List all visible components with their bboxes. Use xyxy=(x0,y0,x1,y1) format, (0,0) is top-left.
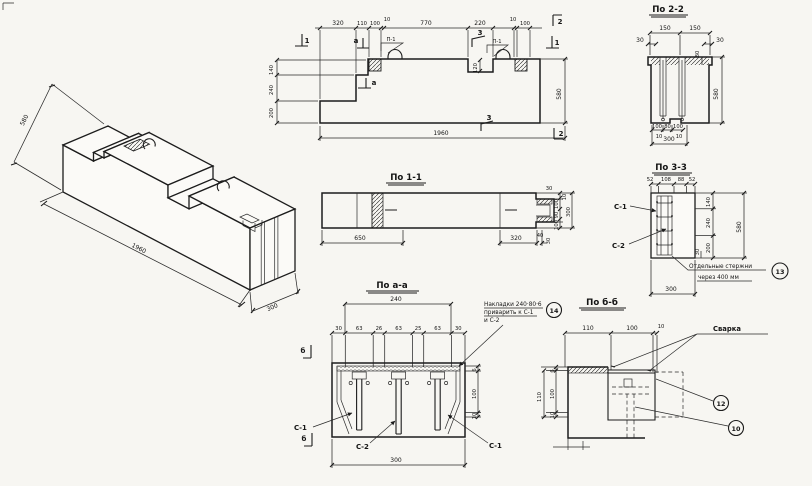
dim: 1960 xyxy=(433,130,448,137)
dim: 770 xyxy=(420,20,432,27)
section-title-underline xyxy=(579,308,626,310)
section-title-underline xyxy=(366,291,419,293)
dim: 100 xyxy=(626,325,638,332)
section-b-b-outline xyxy=(568,367,645,438)
channel-lines xyxy=(435,379,440,430)
dim: 63 xyxy=(356,326,363,332)
lifting-loop-1 xyxy=(388,50,402,59)
dim: 150 xyxy=(689,25,701,32)
ref-number: 10 xyxy=(732,425,741,433)
dim: 580 xyxy=(713,88,720,100)
bolt xyxy=(428,381,431,384)
dim: 110 xyxy=(357,21,367,27)
bottom-extension xyxy=(553,438,590,450)
dim: 90 xyxy=(554,212,560,219)
weld-label: Сварка xyxy=(713,325,741,333)
dim: 100 xyxy=(520,21,530,27)
flange-hatch-1 xyxy=(651,57,660,65)
dim: 52 xyxy=(647,177,654,183)
elevation-right-dimline xyxy=(540,59,568,123)
dim: 108 xyxy=(661,177,671,183)
iso-dim-height: 580 xyxy=(19,113,30,127)
section-title: По 1-1 xyxy=(390,173,422,183)
view-mark-3-top-lines xyxy=(472,36,485,47)
iso-dim-length: 1960 xyxy=(130,242,147,255)
hidden-lines xyxy=(612,372,683,438)
dim: 88 xyxy=(678,177,685,183)
mesh-label-c1: С-1 xyxy=(614,203,627,211)
note-text-1: Накладки 240·80·6 xyxy=(484,302,542,308)
weld-leaders xyxy=(613,334,768,371)
dim: 52 xyxy=(689,177,696,183)
dim: 30 xyxy=(716,37,724,44)
dim: 63 xyxy=(434,326,441,332)
collar xyxy=(392,372,406,379)
section-1-1-plate-band xyxy=(372,193,383,228)
dim: 30 xyxy=(695,249,701,256)
loop-flag-2 xyxy=(487,45,508,56)
channel-insert-right xyxy=(428,372,448,430)
mesh-label-c1-right: С-1 xyxy=(489,442,502,450)
dim: 100 xyxy=(550,389,556,399)
ref-10-leader xyxy=(635,407,728,426)
dim: 240 xyxy=(269,85,275,95)
dim: 10 xyxy=(472,413,478,420)
dim: 25 xyxy=(415,326,422,332)
isometric-view: 580 1960 300 xyxy=(11,84,300,313)
note-leader xyxy=(459,325,503,366)
dim: 120 xyxy=(473,63,479,73)
channel-lines xyxy=(396,379,401,434)
dim: 220 xyxy=(474,20,486,27)
end-plate-top xyxy=(537,199,552,204)
dim: 10 xyxy=(384,17,391,23)
ref-number: 13 xyxy=(776,268,785,276)
top-dim-lines xyxy=(332,333,465,367)
dim: 30 xyxy=(335,326,342,332)
channel-insert-left xyxy=(349,372,369,430)
dim: 200 xyxy=(269,108,275,118)
section-3-3: По 3-3 52 108 88 52 140 240 200 580 30 3… xyxy=(612,163,788,297)
dim: 100 xyxy=(370,21,380,27)
dim: 580 xyxy=(556,88,563,100)
bolt xyxy=(366,381,369,384)
section-b-b: По б-б 110 100 10 6 100 10 110 Сварка 12… xyxy=(537,297,768,450)
dim: 26 xyxy=(376,326,383,332)
note-text-2: приварить к С-1 xyxy=(484,310,534,316)
note-text-2: через 400 мм xyxy=(698,275,739,281)
dim: 240 xyxy=(390,296,402,303)
key-block xyxy=(608,367,655,420)
top-dim-lines xyxy=(650,33,710,55)
bolt xyxy=(389,381,392,384)
dim: 110 xyxy=(537,392,543,402)
section-mark-a-top-lines xyxy=(357,38,369,48)
dim: 6 xyxy=(550,369,556,372)
dim: 10 xyxy=(510,17,517,23)
section-mark-2-bottom: 2 xyxy=(559,130,564,138)
ref-number: 12 xyxy=(717,400,726,408)
embedded-plate-1 xyxy=(369,59,381,71)
dim: 300 xyxy=(390,457,402,464)
section-mark-a-bottom: а xyxy=(372,79,377,87)
dim: 110 xyxy=(582,325,594,332)
section-mark-b-top: б xyxy=(301,347,306,355)
dim: 140 xyxy=(706,197,712,207)
section-mark-1-right: 1 xyxy=(555,39,560,47)
section-title: По 3-3 xyxy=(655,163,687,173)
ref-number: 14 xyxy=(550,307,559,315)
dim: 10 xyxy=(658,324,665,330)
dim: 200 xyxy=(706,243,712,253)
dim: 320 xyxy=(332,20,344,27)
section-2-2-outline xyxy=(648,57,712,123)
dim: 300 xyxy=(566,207,572,217)
channel-lines xyxy=(357,379,362,430)
dim: 10 xyxy=(656,134,663,140)
dim: 300 xyxy=(663,136,675,143)
dim: 650 xyxy=(354,235,366,242)
view-mark-3-top: 3 xyxy=(478,29,483,37)
section-title-underline xyxy=(652,173,692,175)
dim: 100 xyxy=(554,220,560,230)
dim: 30 xyxy=(546,186,553,192)
collar xyxy=(352,372,366,379)
section-mark-1-left: 1 xyxy=(305,37,310,45)
section-mark-a-bottom-lines xyxy=(358,78,371,88)
dim: 80 xyxy=(664,124,671,130)
dim: 150 xyxy=(659,25,671,32)
collar xyxy=(431,372,445,379)
dim: 100 xyxy=(652,124,662,130)
dim: 100 xyxy=(673,124,683,130)
note-text-3: и С-2 xyxy=(484,318,500,324)
anchor-square xyxy=(624,379,632,387)
iso-dim-height-ticks xyxy=(11,85,55,165)
bolt xyxy=(406,381,409,384)
section-1-1: По 1-1 650 320 40 30 30 100 90 100 10 30… xyxy=(320,173,575,246)
dim: 580 xyxy=(736,221,743,233)
dim: 80 xyxy=(695,51,701,58)
bolt xyxy=(445,381,448,384)
dim: 63 xyxy=(395,326,402,332)
dim: 6 xyxy=(472,368,478,371)
end-plate-bottom xyxy=(537,217,552,222)
flange-hatch-2 xyxy=(666,57,679,65)
elevation-outline xyxy=(320,59,540,123)
note-text-1: Отдельные стержни xyxy=(689,264,752,270)
dim: 30 xyxy=(636,37,644,44)
bolt xyxy=(349,381,352,384)
view-mark-3-bottom: 3 xyxy=(487,114,492,122)
section-a-a: По а-а 240 30 63 26 63 25 63 30 xyxy=(294,281,562,468)
drawing-canvas: 580 1960 300 320 110 100 10 770 220 10 1… xyxy=(0,0,812,486)
dim: 100 xyxy=(472,389,478,399)
section-title-underline xyxy=(649,15,688,17)
section-title: По а-а xyxy=(376,281,407,291)
loop-label: П-1 xyxy=(492,39,501,45)
c1-right-leader xyxy=(448,415,488,443)
end-slot xyxy=(536,205,550,216)
lifting-loop-2 xyxy=(496,50,510,59)
section-mark-2-top: 2 xyxy=(558,18,563,26)
drawing-sheet: 580 1960 300 320 110 100 10 770 220 10 1… xyxy=(0,0,812,486)
cover-plate-band xyxy=(337,366,460,371)
mesh-label-c1-left: С-1 xyxy=(294,424,307,432)
dim: 30 xyxy=(455,326,462,332)
elevation-left-extensions xyxy=(277,60,366,123)
section-title: По б-б xyxy=(586,297,618,308)
ref-12-leader xyxy=(656,379,713,401)
dim: 10 xyxy=(676,134,683,140)
dim: 10 xyxy=(550,412,556,419)
loop-label: П-1 xyxy=(386,37,395,43)
sheet-corner-mark xyxy=(3,3,14,10)
dim: 30 xyxy=(546,238,552,245)
section-mark-b-bottom: б xyxy=(302,435,307,443)
dim: 10 xyxy=(562,194,568,201)
dim: 320 xyxy=(510,235,522,242)
dim: 240 xyxy=(706,218,712,228)
elevation-view: 320 110 100 10 770 220 10 100 140 240 20… xyxy=(269,15,568,141)
slot-channels xyxy=(660,57,685,116)
section-mark-a-top: а xyxy=(354,37,359,45)
section-2-2: По 2-2 150 150 30 30 80 580 100 80 100 1… xyxy=(636,5,725,146)
embedded-plate-2 xyxy=(515,59,527,71)
dim: 300 xyxy=(665,286,677,293)
mesh-label-c2: С-2 xyxy=(612,242,625,250)
dim: 40 xyxy=(537,233,544,239)
dim: 140 xyxy=(269,65,275,75)
top-plate-band xyxy=(568,367,608,373)
dim: 100 xyxy=(554,199,560,209)
side-walls xyxy=(337,366,460,434)
section-title: По 2-2 xyxy=(652,5,684,15)
c2-leader xyxy=(370,421,395,443)
mesh-label-c2: С-2 xyxy=(356,443,369,451)
iso-dim-width: 300 xyxy=(266,302,279,313)
section-title-underline xyxy=(386,183,426,185)
channel-insert-middle xyxy=(389,372,409,434)
